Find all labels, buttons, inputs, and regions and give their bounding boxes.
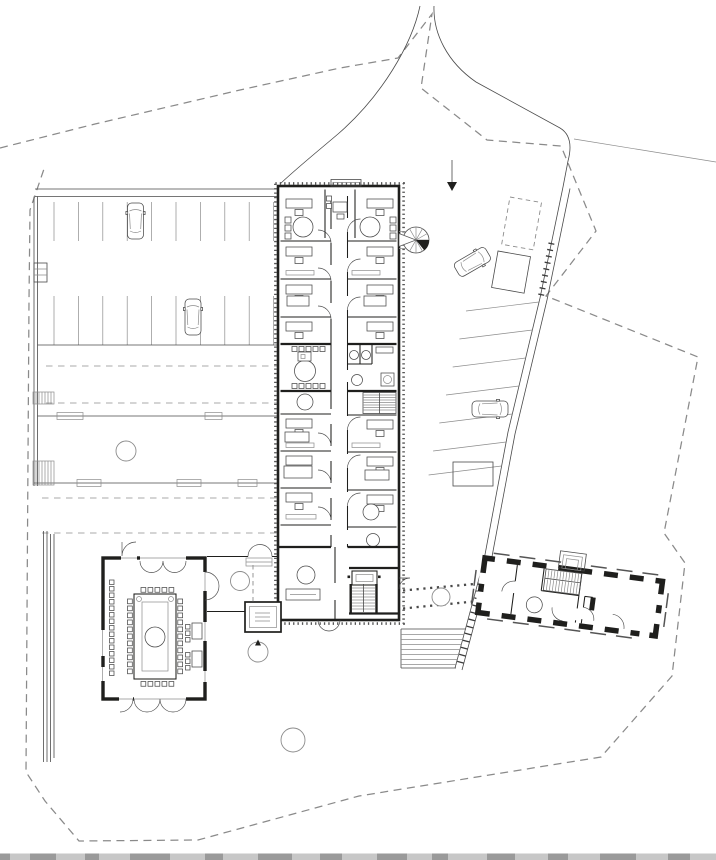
desk [333, 202, 347, 212]
walkway-door-swings [248, 545, 272, 557]
angled-parking [429, 197, 542, 486]
access-road [280, 6, 716, 191]
existing-building [469, 540, 672, 643]
driveway-lanes [33, 366, 278, 533]
garden-stair-west-2 [33, 461, 54, 485]
center-table [145, 627, 165, 647]
lane-centerlines-dashed [42, 366, 278, 533]
car [472, 399, 508, 418]
assembly-hall [101, 542, 219, 712]
parking-stalls-row-north [54, 202, 274, 241]
road-edge-right [434, 6, 570, 187]
road-spur-line [574, 139, 716, 162]
office-building [275, 180, 429, 632]
utility-box [34, 263, 47, 282]
tree [231, 572, 250, 591]
car [183, 299, 202, 335]
chair [337, 214, 344, 219]
parking-stalls-row-mid [54, 296, 274, 345]
parking-walkway-edge [34, 189, 278, 486]
tree [116, 441, 136, 461]
tree [281, 728, 305, 752]
retaining-wall [44, 531, 55, 762]
parking-lot [34, 189, 278, 486]
scale-strip [0, 854, 716, 860]
paved-pad [453, 462, 493, 486]
vestibule [245, 602, 281, 632]
south-door-swings [318, 620, 340, 631]
paved-area [492, 251, 531, 293]
car [452, 245, 493, 280]
direction-arrow [447, 160, 457, 191]
tree [432, 588, 450, 606]
road-edge-left [280, 6, 420, 184]
site-plan-drawing [0, 0, 716, 860]
hall-bench-row [110, 580, 115, 676]
garden-stair-west-1 [33, 392, 54, 404]
angled-stall-lines [429, 302, 539, 475]
car [126, 203, 145, 239]
reception-table [297, 566, 315, 584]
reserved-area-dashed [502, 197, 542, 250]
covered-walkway [207, 545, 281, 663]
utility-box-lines [34, 269, 47, 275]
